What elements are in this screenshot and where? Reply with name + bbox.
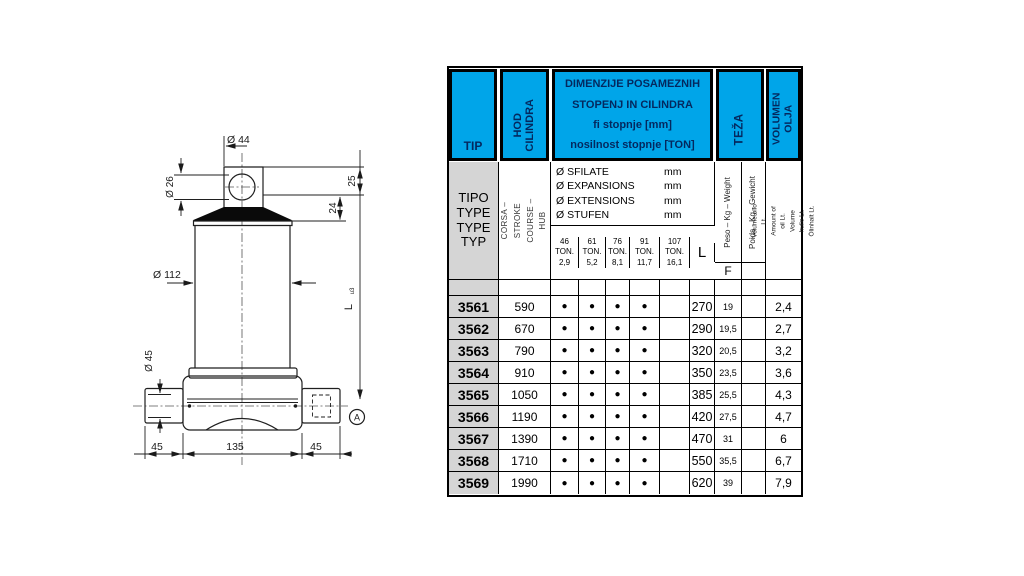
phi-unit: mm (664, 166, 682, 178)
cell-weight2 (742, 340, 766, 361)
subheader-ton-columns: 46 TON. 2,9 61 TON. 5,2 76 TON. 8,1 91 T… (551, 226, 715, 279)
table-row: 3561 590 ● ● ● ● 270 19 2,4 (449, 296, 801, 318)
cell-dot: ● (579, 296, 606, 317)
cell-volume: 3,2 (766, 340, 801, 361)
cell-dot: ● (606, 384, 630, 405)
spec-table: TIP HOD CILINDRA DIMENZIJE POSAMEZNIH ST… (447, 66, 803, 497)
table-row: 3569 1990 ● ● ● ● 620 39 7,9 (449, 472, 801, 494)
cell-dot: ● (630, 296, 660, 317)
subheader-corsa-cell: CORSA – STROKE COURSE – HUB (499, 162, 551, 279)
dim-label-base-left: 45 (151, 441, 163, 453)
cell-dot: ● (579, 428, 606, 449)
cell-dot: ● (551, 318, 579, 339)
dim-body-diameter: Ø 112 (153, 269, 316, 283)
cell-dot: ● (551, 384, 579, 405)
cell-dot: ● (630, 428, 660, 449)
table-subheader: TIPO TYPE TYPE TYP CORSA – STROKE COURSE… (449, 162, 801, 280)
cell-weight2 (742, 406, 766, 427)
dim-label-25: 25 (347, 175, 358, 187)
cell-dot: ● (551, 340, 579, 361)
table-row: 3567 1390 ● ● ● ● 470 31 6 (449, 428, 801, 450)
dim-label-24: 24 (328, 202, 339, 214)
phi-row: Ø EXTENSIONS mm (556, 195, 714, 207)
cell-volume: 3,6 (766, 362, 801, 383)
dim-top-diameter: Ø 44 (224, 134, 250, 166)
header-tip-label: TIP (464, 139, 483, 153)
dim-label-pin-diameter: Ø 45 (144, 350, 155, 372)
cell-weight2 (742, 428, 766, 449)
table-row: 3562 670 ● ● ● ● 290 19,5 2,7 (449, 318, 801, 340)
cell-dot (660, 296, 690, 317)
cell-dot: ● (606, 428, 630, 449)
cell-tip: 3569 (449, 472, 499, 494)
dim-hole-diameter: Ø 26 (165, 158, 229, 216)
header-cell-hod-cilindra: HOD CILINDRA (500, 69, 549, 161)
datasheet-page: Ø 44 Ø 26 25 24 L u3 Ø 11 (0, 0, 1024, 576)
cell-dot: ● (630, 340, 660, 361)
cylinder-drawing: Ø 44 Ø 26 25 24 L u3 Ø 11 (125, 120, 375, 465)
header-hod-label: HOD CILINDRA (512, 99, 537, 152)
dim-label-length-mark: u3 (350, 287, 356, 294)
cell-tip: 3568 (449, 450, 499, 471)
cell-weight2 (742, 450, 766, 471)
corsa-label: CORSA – STROKE COURSE – HUB (499, 195, 550, 246)
detail-marker-label: A (354, 413, 360, 423)
cell-tip: 3567 (449, 428, 499, 449)
cell-dot: ● (606, 296, 630, 317)
l-column-header: L (690, 243, 715, 263)
cell-weight: 27,5 (715, 406, 742, 427)
cell-stroke: 670 (499, 318, 551, 339)
phi-unit: mm (664, 195, 682, 207)
cell-dot: ● (579, 318, 606, 339)
cell-dot (660, 340, 690, 361)
cell-volume: 6 (766, 428, 801, 449)
phi-name: Ø EXTENSIONS (556, 195, 635, 207)
cell-dot: ● (579, 384, 606, 405)
cell-volume: 6,7 (766, 450, 801, 471)
cell-length: 350 (690, 362, 715, 383)
cell-weight: 23,5 (715, 362, 742, 383)
cell-dot: ● (606, 340, 630, 361)
cell-length: 470 (690, 428, 715, 449)
cell-dot (660, 384, 690, 405)
table-row: 3565 1050 ● ● ● ● 385 25,5 4,3 (449, 384, 801, 406)
f-label: F (724, 264, 731, 278)
table-row: 3566 1190 ● ● ● ● 420 27,5 4,7 (449, 406, 801, 428)
cell-weight2 (742, 472, 766, 494)
cell-length: 385 (690, 384, 715, 405)
cell-dot: ● (606, 450, 630, 471)
cell-dot: ● (579, 362, 606, 383)
cell-dot: ● (551, 296, 579, 317)
cell-dot (660, 450, 690, 471)
cell-dot: ● (630, 450, 660, 471)
cell-dot: ● (606, 362, 630, 383)
cell-stroke: 1390 (499, 428, 551, 449)
table-row: 3568 1710 ● ● ● ● 550 35,5 6,7 (449, 450, 801, 472)
cell-dot: ● (630, 362, 660, 383)
header-cell-dimenzije: DIMENZIJE POSAMEZNIH STOPENJ IN CILINDRA… (552, 69, 713, 161)
cell-tip: 3562 (449, 318, 499, 339)
phi-name: Ø SFILATE (556, 166, 609, 178)
cell-dot (660, 362, 690, 383)
cell-volume: 7,9 (766, 472, 801, 494)
ton-col-91: 91 TON. 11,7 (630, 237, 660, 268)
cell-weight2 (742, 362, 766, 383)
dim-label-body-diameter: Ø 112 (153, 269, 181, 281)
ton-col-76: 76 TON. 8,1 (606, 237, 630, 268)
table-header: TIP HOD CILINDRA DIMENZIJE POSAMEZNIH ST… (449, 68, 801, 162)
spacer-row (449, 280, 801, 296)
cell-weight: 20,5 (715, 340, 742, 361)
phi-name: Ø EXPANSIONS (556, 180, 635, 192)
cell-volume: 2,4 (766, 296, 801, 317)
dim-pin-diameter: Ø 45 (144, 350, 171, 433)
phi-row: Ø SFILATE mm (556, 166, 714, 178)
subheader-tipo-cell: TIPO TYPE TYPE TYP (449, 162, 499, 279)
header-cell-teza: TEŽA (716, 69, 764, 161)
cell-dot: ● (551, 362, 579, 383)
cell-tip: 3563 (449, 340, 499, 361)
cell-tip: 3564 (449, 362, 499, 383)
subheader-f-cell: F (715, 262, 742, 279)
cell-dot: ● (630, 384, 660, 405)
cell-dot: ● (551, 406, 579, 427)
cell-dot: ● (579, 340, 606, 361)
cell-volume: 4,3 (766, 384, 801, 405)
ton-col-46: 46 TON. 2,9 (551, 237, 579, 268)
cell-dot: ● (579, 450, 606, 471)
cell-length: 420 (690, 406, 715, 427)
cell-length: 550 (690, 450, 715, 471)
cell-tip: 3561 (449, 296, 499, 317)
cell-dot: ● (606, 472, 630, 494)
dim-bottom-widths: 45 135 45 (134, 426, 352, 459)
cell-dot (660, 472, 690, 494)
cell-dot: ● (551, 472, 579, 494)
header-volumen-label: VOLUMEN OLJA (772, 93, 796, 146)
table-row: 3564 910 ● ● ● ● 350 23,5 3,6 (449, 362, 801, 384)
tipo-label: TIPO TYPE TYPE TYP (457, 191, 491, 251)
cell-weight: 25,5 (715, 384, 742, 405)
cell-weight2 (742, 384, 766, 405)
cell-length: 270 (690, 296, 715, 317)
phi-row: Ø EXPANSIONS mm (556, 180, 714, 192)
cell-stroke: 590 (499, 296, 551, 317)
volume-lines-label: Volume olio Lt. Amount of oil Lt. Volume… (751, 203, 817, 238)
cell-dot: ● (579, 472, 606, 494)
cell-dot: ● (630, 406, 660, 427)
dim-label-length: L (343, 304, 355, 310)
cell-stroke: 910 (499, 362, 551, 383)
peso-label: Peso – Kg – Weight (724, 177, 733, 248)
cell-dot: ● (606, 318, 630, 339)
subheader-peso-cell: Peso – Kg – Weight (715, 162, 742, 262)
cell-stroke: 1050 (499, 384, 551, 405)
ton-col-107: 107 TON. 16,1 (660, 237, 690, 268)
cell-dot: ● (630, 318, 660, 339)
phi-unit: mm (664, 209, 682, 221)
cell-weight: 39 (715, 472, 742, 494)
cell-weight: 31 (715, 428, 742, 449)
dim-right-side: 25 24 L u3 (263, 150, 364, 399)
cell-volume: 4,7 (766, 406, 801, 427)
cell-dot: ● (579, 406, 606, 427)
dim-label-base-right: 45 (310, 441, 322, 453)
cell-weight: 35,5 (715, 450, 742, 471)
cell-dot: ● (630, 472, 660, 494)
cell-dot: ● (551, 428, 579, 449)
cell-dot: ● (606, 406, 630, 427)
header-teza-label: TEŽA (734, 113, 747, 145)
cell-weight: 19,5 (715, 318, 742, 339)
subheader-volume-cell: Volume olio Lt. Amount of oil Lt. Volume… (766, 162, 801, 279)
cylinder-outline (145, 167, 340, 430)
cell-volume: 2,7 (766, 318, 801, 339)
dim-label-base-mid: 135 (226, 441, 244, 453)
phi-unit: mm (664, 180, 682, 192)
detail-marker: A (350, 410, 365, 425)
subheader-f2-cell (742, 262, 766, 279)
cell-stroke: 1990 (499, 472, 551, 494)
phi-name: Ø STUFEN (556, 209, 609, 221)
cell-weight2 (742, 296, 766, 317)
cell-stroke: 790 (499, 340, 551, 361)
cell-dot (660, 406, 690, 427)
cell-dot (660, 318, 690, 339)
cell-stroke: 1710 (499, 450, 551, 471)
cell-tip: 3565 (449, 384, 499, 405)
cell-dot: ● (551, 450, 579, 471)
ton-col-61: 61 TON. 5,2 (579, 237, 606, 268)
cell-length: 320 (690, 340, 715, 361)
cell-weight: 19 (715, 296, 742, 317)
dim-label-top-diameter: Ø 44 (227, 134, 250, 146)
cone-stack (194, 208, 292, 221)
dim-label-hole-diameter: Ø 26 (165, 176, 176, 198)
cell-weight2 (742, 318, 766, 339)
table-row: 3563 790 ● ● ● ● 320 20,5 3,2 (449, 340, 801, 362)
cell-dot (660, 428, 690, 449)
subheader-diameter-legend: Ø SFILATE mm Ø EXPANSIONS mm Ø EXTENSION… (551, 162, 715, 226)
cell-length: 620 (690, 472, 715, 494)
header-dimenzije-label: DIMENZIJE POSAMEZNIH STOPENJ IN CILINDRA… (565, 74, 700, 155)
cell-stroke: 1190 (499, 406, 551, 427)
header-cell-tip: TIP (449, 69, 497, 161)
header-cell-volumen: VOLUMEN OLJA (766, 69, 801, 161)
phi-row: Ø STUFEN mm (556, 209, 714, 221)
cell-length: 290 (690, 318, 715, 339)
cell-tip: 3566 (449, 406, 499, 427)
